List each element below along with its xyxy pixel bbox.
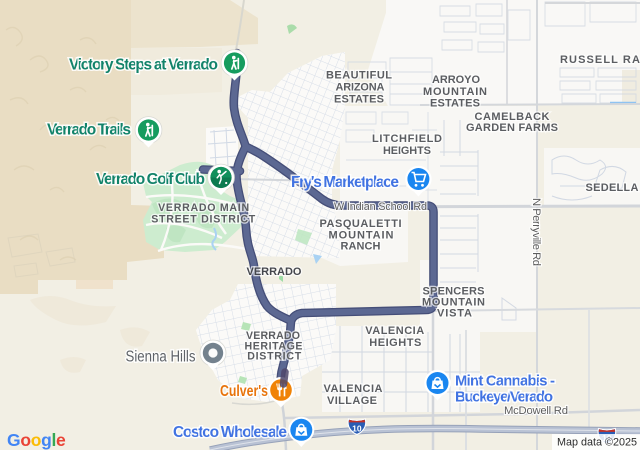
svg-text:McDowell Rd: McDowell Rd bbox=[504, 405, 568, 417]
svg-text:VERRADO: VERRADO bbox=[247, 266, 302, 278]
svg-text:BEAUTIFUL: BEAUTIFUL bbox=[326, 70, 392, 82]
svg-text:RUSSELL RANC: RUSSELL RANC bbox=[560, 54, 640, 66]
svg-text:DISTRICT: DISTRICT bbox=[247, 351, 302, 363]
svg-text:Buckeye/Verado: Buckeye/Verado bbox=[455, 389, 553, 406]
svg-text:Verrado Golf Club: Verrado Golf Club bbox=[96, 171, 205, 188]
svg-text:Sienna Hills: Sienna Hills bbox=[126, 349, 196, 366]
svg-text:Mint Cannabis -: Mint Cannabis - bbox=[455, 373, 555, 390]
svg-text:ESTATES: ESTATES bbox=[334, 94, 384, 106]
svg-text:ARIZONA: ARIZONA bbox=[336, 82, 385, 94]
svg-text:VILLAGE: VILLAGE bbox=[327, 395, 377, 407]
svg-text:Map data ©2025: Map data ©2025 bbox=[557, 437, 637, 449]
svg-text:ARROYO: ARROYO bbox=[432, 74, 480, 86]
svg-text:HEIGHTS: HEIGHTS bbox=[383, 145, 431, 157]
svg-text:STREET DISTRICT: STREET DISTRICT bbox=[151, 214, 256, 226]
svg-text:N Perryville Rd: N Perryville Rd bbox=[530, 198, 542, 266]
svg-text:PASQUALETTI: PASQUALETTI bbox=[320, 218, 402, 230]
svg-text:VALENCIA: VALENCIA bbox=[365, 325, 424, 337]
svg-text:Culver's: Culver's bbox=[220, 383, 268, 400]
svg-text:HEIGHTS: HEIGHTS bbox=[369, 337, 421, 349]
svg-text:Google: Google bbox=[7, 430, 66, 450]
svg-text:ESTATES: ESTATES bbox=[430, 97, 480, 109]
svg-text:10: 10 bbox=[352, 424, 362, 434]
svg-text:W Indian School Rd: W Indian School Rd bbox=[334, 201, 427, 213]
svg-text:Victory Steps at Verrado: Victory Steps at Verrado bbox=[69, 57, 218, 74]
svg-text:RANCH: RANCH bbox=[341, 241, 381, 253]
svg-text:VERRADO MAIN: VERRADO MAIN bbox=[158, 202, 249, 214]
svg-text:VALENCIA: VALENCIA bbox=[324, 383, 383, 395]
svg-text:SEDELLA: SEDELLA bbox=[586, 182, 639, 194]
svg-text:Costco Wholesale: Costco Wholesale bbox=[173, 424, 287, 441]
svg-text:Verrado Trails: Verrado Trails bbox=[47, 122, 131, 139]
svg-text:MOUNTAIN: MOUNTAIN bbox=[423, 86, 487, 98]
svg-text:VISTA: VISTA bbox=[437, 308, 472, 320]
svg-text:Fry's Marketplace: Fry's Marketplace bbox=[291, 174, 399, 191]
svg-text:GARDEN FARMS: GARDEN FARMS bbox=[466, 122, 558, 134]
svg-text:LITCHFIELD: LITCHFIELD bbox=[372, 133, 442, 145]
